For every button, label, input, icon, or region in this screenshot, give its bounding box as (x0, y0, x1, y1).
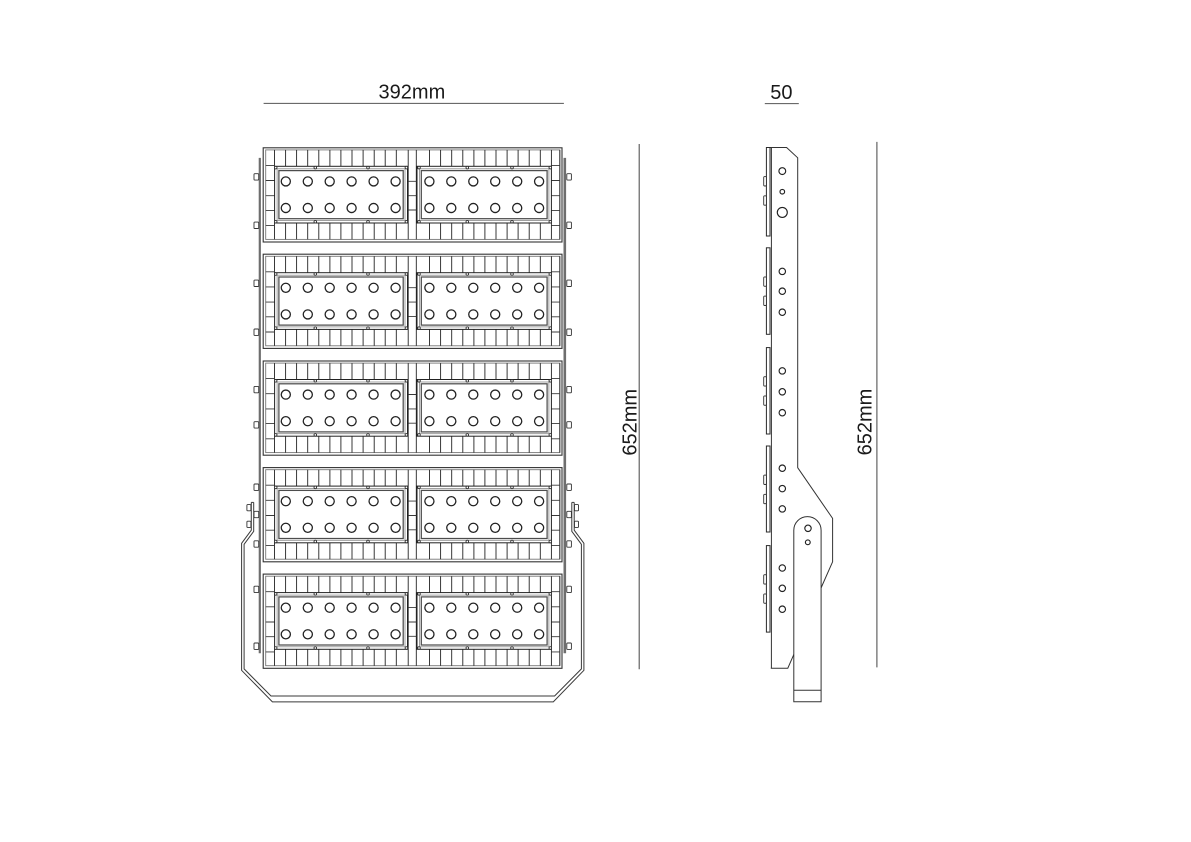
svg-text:50: 50 (770, 82, 792, 104)
svg-text:652mm: 652mm (620, 389, 642, 456)
svg-text:652mm: 652mm (855, 389, 877, 456)
svg-text:392mm: 392mm (379, 82, 446, 104)
